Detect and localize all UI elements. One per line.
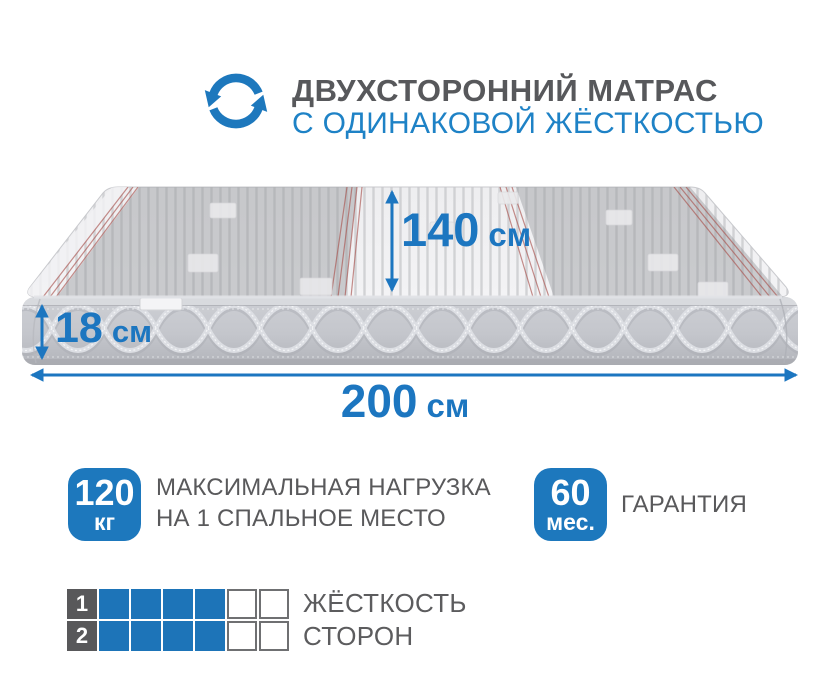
height-value: 18: [55, 304, 103, 353]
header-title: ДВУХСТОРОННИЙ МАТРАС: [292, 74, 764, 108]
max-load-unit: кг: [94, 510, 115, 534]
firmness-label-line2: СТОРОН: [303, 620, 467, 653]
warranty-value: 60: [550, 476, 590, 510]
max-load-text: МАКСИМАЛЬНАЯ НАГРУЗКА НА 1 СПАЛЬНОЕ МЕСТ…: [156, 472, 491, 534]
firmness-filled-square: [195, 589, 225, 619]
length-value: 200: [341, 374, 418, 428]
warranty-unit: мес.: [546, 510, 595, 534]
firmness-squares-2: [99, 621, 289, 651]
height-label: 18 см: [55, 304, 152, 353]
firmness-filled-square: [131, 589, 161, 619]
firmness-side-number-2: 2: [67, 621, 97, 651]
firmness-filled-square: [131, 621, 161, 651]
firmness-row-1: 1: [67, 589, 289, 619]
max-load-text-line2: НА 1 СПАЛЬНОЕ МЕСТО: [156, 503, 491, 534]
depth-label: 140 см: [401, 202, 531, 257]
firmness-side-number-1: 1: [67, 589, 97, 619]
firmness-row-2: 2: [67, 621, 289, 651]
header-text: ДВУХСТОРОННИЙ МАТРАС С ОДИНАКОВОЙ ЖЁСТКО…: [292, 74, 764, 140]
firmness-empty-square: [227, 621, 257, 651]
max-load-badge: 120 кг: [68, 468, 141, 541]
length-label: 200 см: [285, 374, 525, 428]
firmness-squares-1: [99, 589, 289, 619]
warranty-text: ГАРАНТИЯ: [621, 468, 747, 541]
mattress-infographic: ДВУХСТОРОННИЙ МАТРАС С ОДИНАКОВОЙ ЖЁСТКО…: [0, 0, 816, 700]
max-load-value: 120: [74, 476, 134, 510]
firmness-label: ЖЁСТКОСТЬ СТОРОН: [303, 587, 467, 653]
depth-value: 140: [401, 202, 479, 257]
firmness-filled-square: [99, 621, 129, 651]
firmness-scale: 1 2: [67, 589, 289, 651]
depth-unit: см: [488, 216, 531, 254]
rotate-arrows-icon: [197, 60, 275, 142]
firmness-filled-square: [99, 589, 129, 619]
warranty-text-line1: ГАРАНТИЯ: [621, 489, 747, 520]
firmness-filled-square: [163, 621, 193, 651]
max-load-text-line1: МАКСИМАЛЬНАЯ НАГРУЗКА: [156, 472, 491, 503]
firmness-empty-square: [259, 621, 289, 651]
header-subtitle: С ОДИНАКОВОЙ ЖЁСТКОСТЬЮ: [292, 108, 764, 140]
firmness-empty-square: [259, 589, 289, 619]
firmness-filled-square: [163, 589, 193, 619]
firmness-label-line1: ЖЁСТКОСТЬ: [303, 587, 467, 620]
firmness-filled-square: [195, 621, 225, 651]
mattress-illustration: [0, 158, 816, 408]
length-unit: см: [426, 387, 469, 425]
firmness-empty-square: [227, 589, 257, 619]
height-unit: см: [112, 314, 152, 350]
warranty-badge: 60 мес.: [534, 468, 607, 541]
